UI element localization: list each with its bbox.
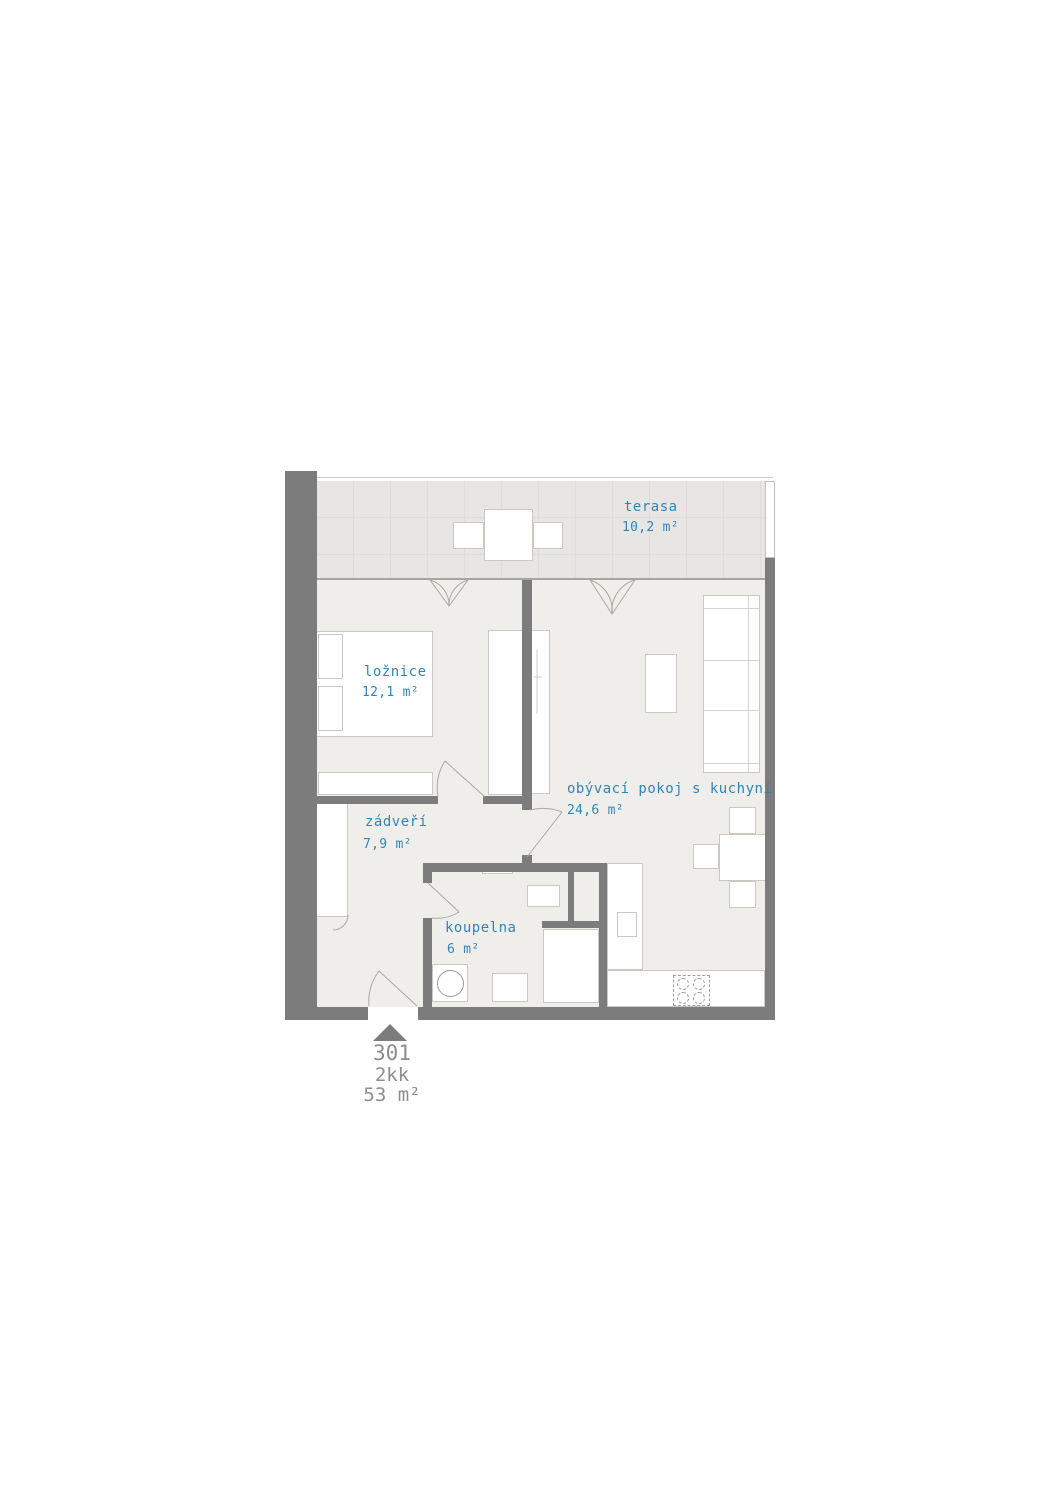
wall-bedroom-living [522,580,532,810]
entrance-arrow-icon [373,1024,407,1041]
wall-exterior-bottom-left [285,1007,368,1020]
wall-bathroom-left-lower [423,918,432,1007]
dining-chair-left [693,844,719,869]
unit-info: 301 2kk 53 m² [312,1042,472,1106]
wall-bathroom-left-upper [423,863,432,883]
room-area-loznice: 12,1 m² [362,686,419,700]
bed-pillow-top [318,634,343,679]
toilet [492,973,528,1002]
dining-chair-top [729,807,756,834]
shower [543,929,599,1003]
coffee-table [645,654,677,713]
building-edge-line [317,477,773,478]
terrace-chair-left [453,522,484,549]
room-area-obyvaci-pokoj: 24,6 m² [567,804,624,818]
unit-disposition: 2kk [312,1065,472,1086]
bed-pillow-bottom [318,686,343,731]
wall-exterior-bottom-right [418,1007,775,1020]
unit-number: 301 [312,1042,472,1065]
dining-table [719,834,766,881]
wall-bedroom-hall [316,796,438,804]
terrace-railing-window [765,481,775,558]
room-area-terasa: 10,2 m² [622,521,679,535]
room-label-zadveri: zádveří [365,814,428,830]
room-area-koupelna: 6 m² [447,943,480,957]
kitchen-sink [617,912,637,937]
room-label-terasa: terasa [624,499,678,515]
sofa [703,595,760,773]
room-label-loznice: ložnice [364,664,427,680]
stove [673,975,710,1006]
unit-total-area: 53 m² [312,1085,472,1106]
bathroom-sink [527,885,560,907]
terrace-facade-line [317,578,765,580]
room-label-koupelna: koupelna [445,920,516,936]
bedroom-wardrobe [488,630,523,795]
terrace-chair-right [533,522,563,549]
wall-shaft-left [568,872,574,923]
room-label-obyvaci-pokoj: obývací pokoj s kuchyní [567,781,772,797]
wall-shaft-bottom [542,921,607,928]
bed-bench [318,772,433,795]
dining-chair-bottom [729,881,756,908]
wall-bathroom-top [432,863,607,872]
floor-plan-page: terasa 10,2 m² ložnice 12,1 m² obývací p… [0,0,1058,1497]
wall-exterior-left [285,471,317,1020]
terrace-table [484,509,533,561]
room-area-zadveri: 7,9 m² [363,838,412,852]
hall-closet [317,803,348,917]
wall-bedroom-hall-stub [483,796,532,804]
washing-machine [432,964,468,1002]
wall-kitchen-shaft [599,872,607,1007]
